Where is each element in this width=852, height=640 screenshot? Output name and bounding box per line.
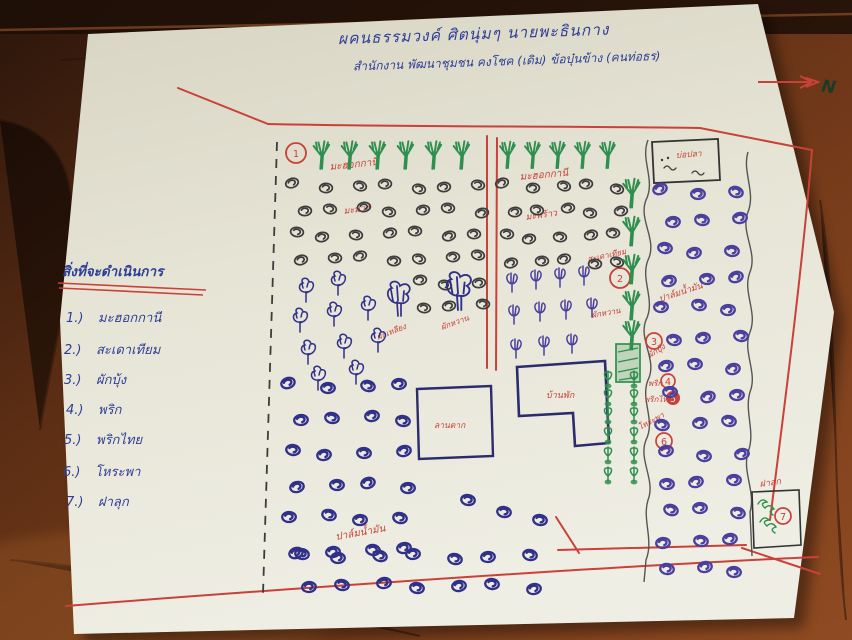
legend-item-label-1: มะฮอกกานี <box>98 310 163 326</box>
label-drying-yard: ลานตาก <box>434 421 466 431</box>
legend-item-no-4: 4.) <box>66 403 83 418</box>
legend-item-label-6: โหระพา <box>95 464 141 480</box>
compass-n-label: N <box>820 77 837 99</box>
legend-item-no-5: 5.) <box>64 433 81 448</box>
legend-item-label-7: ฝาลุก <box>98 495 130 510</box>
legend-item-no-3: 3.) <box>64 373 81 388</box>
legend-heading: สิ่งที่จะดำเนินการ <box>62 261 166 280</box>
legend-item-no-7: 7.) <box>66 495 83 510</box>
legend-item-label-3: ผักบุ้ง <box>96 373 128 388</box>
marker-7-number: 7 <box>780 512 786 523</box>
legend-item-label-2: สะเดาเทียม <box>96 342 162 358</box>
label-house: บ้านพัก <box>546 390 575 401</box>
legend-item-no-6: 6.) <box>63 465 80 480</box>
paper-sheet <box>60 4 834 634</box>
legend-item-no-2: 2.) <box>64 343 81 358</box>
marker-1-number: 1 <box>293 149 299 160</box>
legend-item-label-4: พริก <box>98 403 123 418</box>
legend-item-no-1: 1.) <box>66 311 83 326</box>
marker-2-number: 2 <box>617 274 623 285</box>
photo-of-farm-plan: ผคนธรรมวงค์ ศิตนุ่มๆ นายพะธินกาง สำนักงา… <box>0 0 852 640</box>
label-fish-pond: บ่อปลา <box>676 149 703 161</box>
farm-plan-scene: ผคนธรรมวงค์ ศิตนุ่มๆ นายพะธินกาง สำนักงา… <box>0 0 852 640</box>
marker-3-number: 3 <box>651 337 657 348</box>
legend-item-label-5: พริกไทย <box>96 432 144 448</box>
